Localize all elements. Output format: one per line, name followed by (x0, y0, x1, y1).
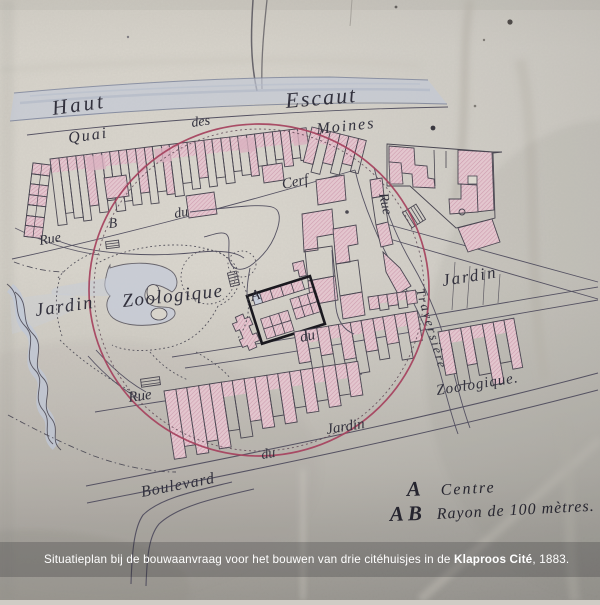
svg-text:du: du (260, 446, 276, 463)
svg-text:du: du (173, 205, 189, 222)
svg-text:A: A (404, 477, 421, 502)
svg-text:Situatieplan bij de bouwaanvra: Situatieplan bij de bouwaanvraag voor he… (44, 553, 569, 566)
svg-text:des: des (190, 113, 211, 131)
svg-text:Rue: Rue (126, 387, 153, 406)
svg-text:A B: A B (387, 501, 422, 526)
svg-text:Centre: Centre (440, 479, 496, 499)
